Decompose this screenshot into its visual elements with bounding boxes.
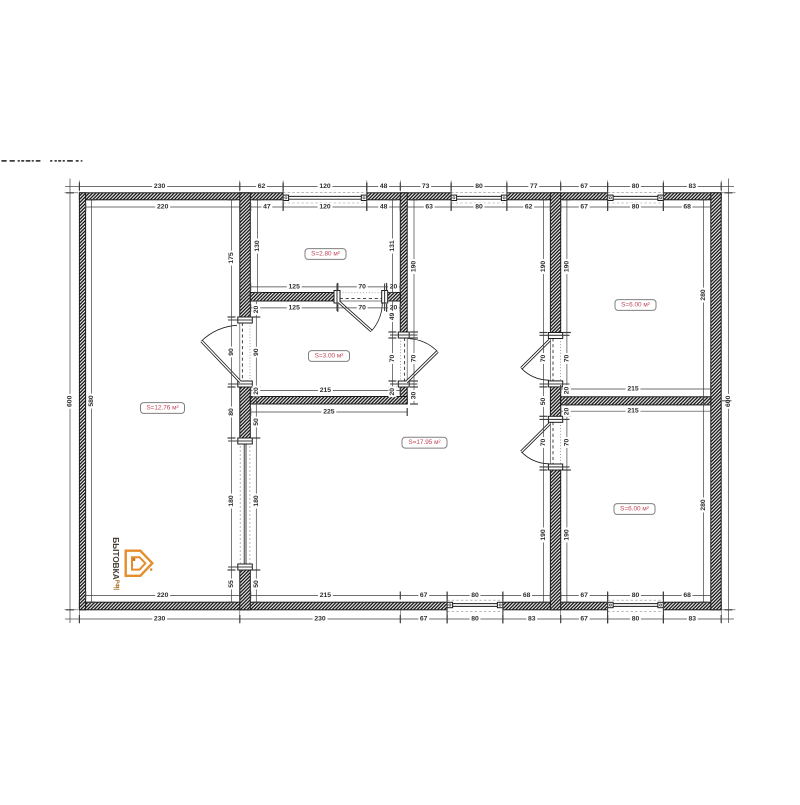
svg-text:80: 80 <box>632 616 640 623</box>
svg-text:80: 80 <box>475 204 483 211</box>
svg-text:120: 120 <box>319 183 331 190</box>
svg-text:190: 190 <box>540 261 547 273</box>
svg-text:20: 20 <box>253 306 260 314</box>
svg-text:190: 190 <box>540 529 547 541</box>
svg-text:131: 131 <box>389 240 396 252</box>
svg-text:70: 70 <box>411 355 418 363</box>
svg-text:49: 49 <box>389 313 396 321</box>
svg-text:67: 67 <box>580 204 588 211</box>
svg-text:20: 20 <box>563 408 570 416</box>
svg-text:70: 70 <box>358 283 366 290</box>
svg-text:48: 48 <box>380 204 388 211</box>
svg-text:83: 83 <box>689 183 697 190</box>
svg-text:70: 70 <box>563 355 570 363</box>
svg-text:70: 70 <box>358 304 366 311</box>
svg-text:S=2.80 м²: S=2.80 м² <box>311 251 340 258</box>
svg-text:80: 80 <box>228 408 235 416</box>
svg-text:215: 215 <box>320 387 332 394</box>
svg-text:62: 62 <box>258 183 266 190</box>
svg-text:70: 70 <box>563 439 570 447</box>
svg-text:50: 50 <box>540 398 547 406</box>
svg-text:55: 55 <box>228 580 235 588</box>
svg-text:20: 20 <box>563 387 570 395</box>
svg-text:S=17.95 м²: S=17.95 м² <box>408 439 440 446</box>
svg-text:80: 80 <box>471 592 479 599</box>
svg-text:90: 90 <box>228 348 235 356</box>
svg-text:РФ: РФ <box>113 580 119 589</box>
svg-text:70: 70 <box>540 439 547 447</box>
svg-text:190: 190 <box>411 261 418 273</box>
svg-text:90: 90 <box>253 348 260 356</box>
svg-text:175: 175 <box>228 252 235 264</box>
svg-text:S=6.00 м²: S=6.00 м² <box>621 302 650 309</box>
svg-text:S=12.76 м²: S=12.76 м² <box>146 405 178 412</box>
svg-text:230: 230 <box>314 616 326 623</box>
svg-text:77: 77 <box>530 183 538 190</box>
svg-text:S=6.00 м²: S=6.00 м² <box>620 506 649 513</box>
svg-text:280: 280 <box>700 289 707 301</box>
svg-text:125: 125 <box>289 283 301 290</box>
svg-text:68: 68 <box>683 204 691 211</box>
svg-text:190: 190 <box>563 261 570 273</box>
svg-text:50: 50 <box>253 580 260 588</box>
svg-text:180: 180 <box>253 495 260 507</box>
svg-text:80: 80 <box>632 592 640 599</box>
svg-text:67: 67 <box>420 592 428 599</box>
svg-text:73: 73 <box>422 183 430 190</box>
svg-text:190: 190 <box>563 529 570 541</box>
svg-text:67: 67 <box>580 592 588 599</box>
svg-text:83: 83 <box>689 616 697 623</box>
svg-text:120: 120 <box>319 204 331 211</box>
svg-text:20: 20 <box>253 387 260 395</box>
svg-text:80: 80 <box>632 204 640 211</box>
svg-text:68: 68 <box>683 592 691 599</box>
svg-text:83: 83 <box>528 616 536 623</box>
svg-text:80: 80 <box>475 183 483 190</box>
svg-text:130: 130 <box>254 240 261 252</box>
svg-text:67: 67 <box>580 616 588 623</box>
svg-text:580: 580 <box>88 395 95 407</box>
svg-text:20: 20 <box>390 304 398 311</box>
svg-text:62: 62 <box>525 204 533 211</box>
svg-text:125: 125 <box>289 304 301 311</box>
svg-text:68: 68 <box>523 592 531 599</box>
svg-text:80: 80 <box>471 616 479 623</box>
svg-text:280: 280 <box>700 499 707 511</box>
svg-text:220: 220 <box>157 204 169 211</box>
svg-text:48: 48 <box>380 183 388 190</box>
svg-text:215: 215 <box>627 386 639 393</box>
svg-text:70: 70 <box>389 355 396 363</box>
svg-text:63: 63 <box>425 204 433 211</box>
svg-text:67: 67 <box>420 616 428 623</box>
svg-text:20: 20 <box>390 283 398 290</box>
svg-text:180: 180 <box>228 495 235 507</box>
svg-text:225: 225 <box>323 409 335 416</box>
svg-text:50: 50 <box>253 418 260 426</box>
svg-text:20: 20 <box>389 388 396 396</box>
svg-text:67: 67 <box>580 183 588 190</box>
svg-text:215: 215 <box>320 592 332 599</box>
svg-text:30: 30 <box>411 392 418 400</box>
svg-text:230: 230 <box>154 183 166 190</box>
svg-text:600: 600 <box>67 395 74 407</box>
svg-text:47: 47 <box>263 204 271 211</box>
svg-text:220: 220 <box>157 592 169 599</box>
svg-text:БЫТОВКА: БЫТОВКА <box>111 537 121 579</box>
svg-text:S=3.00 м²: S=3.00 м² <box>315 353 344 360</box>
svg-text:80: 80 <box>632 183 640 190</box>
svg-text:230: 230 <box>154 616 166 623</box>
svg-text:70: 70 <box>540 355 547 363</box>
svg-text:215: 215 <box>627 408 639 415</box>
